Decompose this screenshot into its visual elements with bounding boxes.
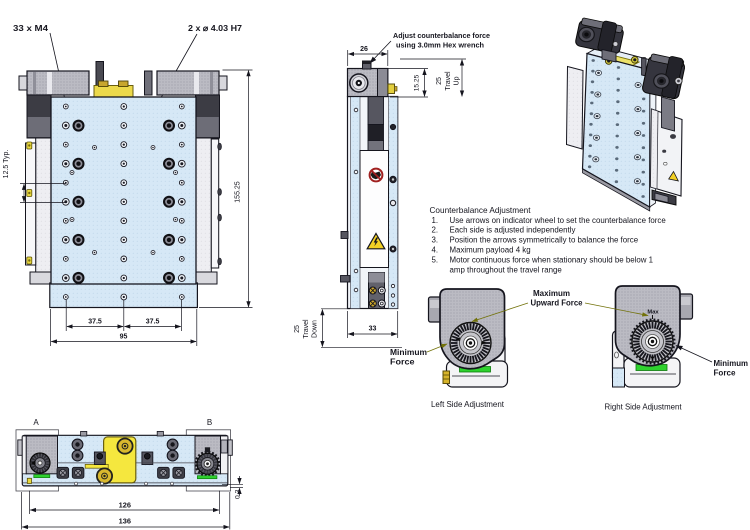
svg-text:using 3.0mm Hex wrench: using 3.0mm Hex wrench [396,41,484,50]
svg-text:Down: Down [312,320,319,338]
svg-text:0.3: 0.3 [235,489,242,499]
svg-text:126: 126 [119,501,131,510]
svg-text:95: 95 [120,334,128,341]
svg-text:2.: 2. [432,226,439,235]
svg-text:Right Side Adjustment: Right Side Adjustment [605,402,683,412]
svg-text:Maximum payload 4 kg: Maximum payload 4 kg [450,246,531,255]
svg-text:Position the arrows symmetrica: Position the arrows symmetrically to bal… [450,236,639,245]
svg-text:Each side is adjusted independ: Each side is adjusted independently [450,226,576,235]
svg-text:37.5: 37.5 [88,319,102,326]
svg-text:26: 26 [360,46,368,53]
svg-text:A: A [33,418,39,427]
svg-text:12.5 Typ.: 12.5 Typ. [3,150,10,179]
svg-text:Minimum: Minimum [390,348,427,357]
svg-text:33: 33 [369,326,377,333]
svg-text:Minimum: Minimum [714,359,749,368]
svg-text:Max: Max [647,310,659,316]
svg-text:5.: 5. [432,255,439,264]
svg-text:37.5: 37.5 [146,319,160,326]
svg-text:amp throughout the travel rang: amp throughout the travel range [450,265,563,274]
svg-text:4.: 4. [432,246,439,255]
svg-text:Force: Force [390,358,415,367]
svg-text:Counterbalance Adjustment: Counterbalance Adjustment [430,205,532,215]
svg-text:Adjust counterbalance force: Adjust counterbalance force [393,31,490,40]
svg-text:25: 25 [294,325,301,333]
svg-text:3.: 3. [432,236,439,245]
svg-text:Up: Up [454,76,461,85]
svg-text:Use arrows on indicator wheel: Use arrows on indicator wheel to set the… [450,216,667,225]
svg-text:1.: 1. [432,216,439,225]
svg-text:Travel: Travel [445,71,452,91]
svg-text:Force: Force [714,369,737,378]
svg-text:25: 25 [436,77,443,85]
svg-text:B: B [207,418,212,427]
svg-text:Maximum: Maximum [533,289,570,298]
svg-text:2 x ⌀ 4.03 H7: 2 x ⌀ 4.03 H7 [188,23,242,33]
svg-text:Travel: Travel [303,319,310,339]
svg-text:15.25: 15.25 [414,74,421,91]
svg-text:Left Side Adjustment: Left Side Adjustment [431,399,505,409]
svg-text:136: 136 [119,517,131,526]
svg-text:Motor continuous force when st: Motor continuous force when stationary s… [450,255,654,264]
svg-text:155.25: 155.25 [235,181,242,203]
svg-text:33 x M4: 33 x M4 [13,23,48,33]
svg-text:Upward Force: Upward Force [531,299,584,308]
